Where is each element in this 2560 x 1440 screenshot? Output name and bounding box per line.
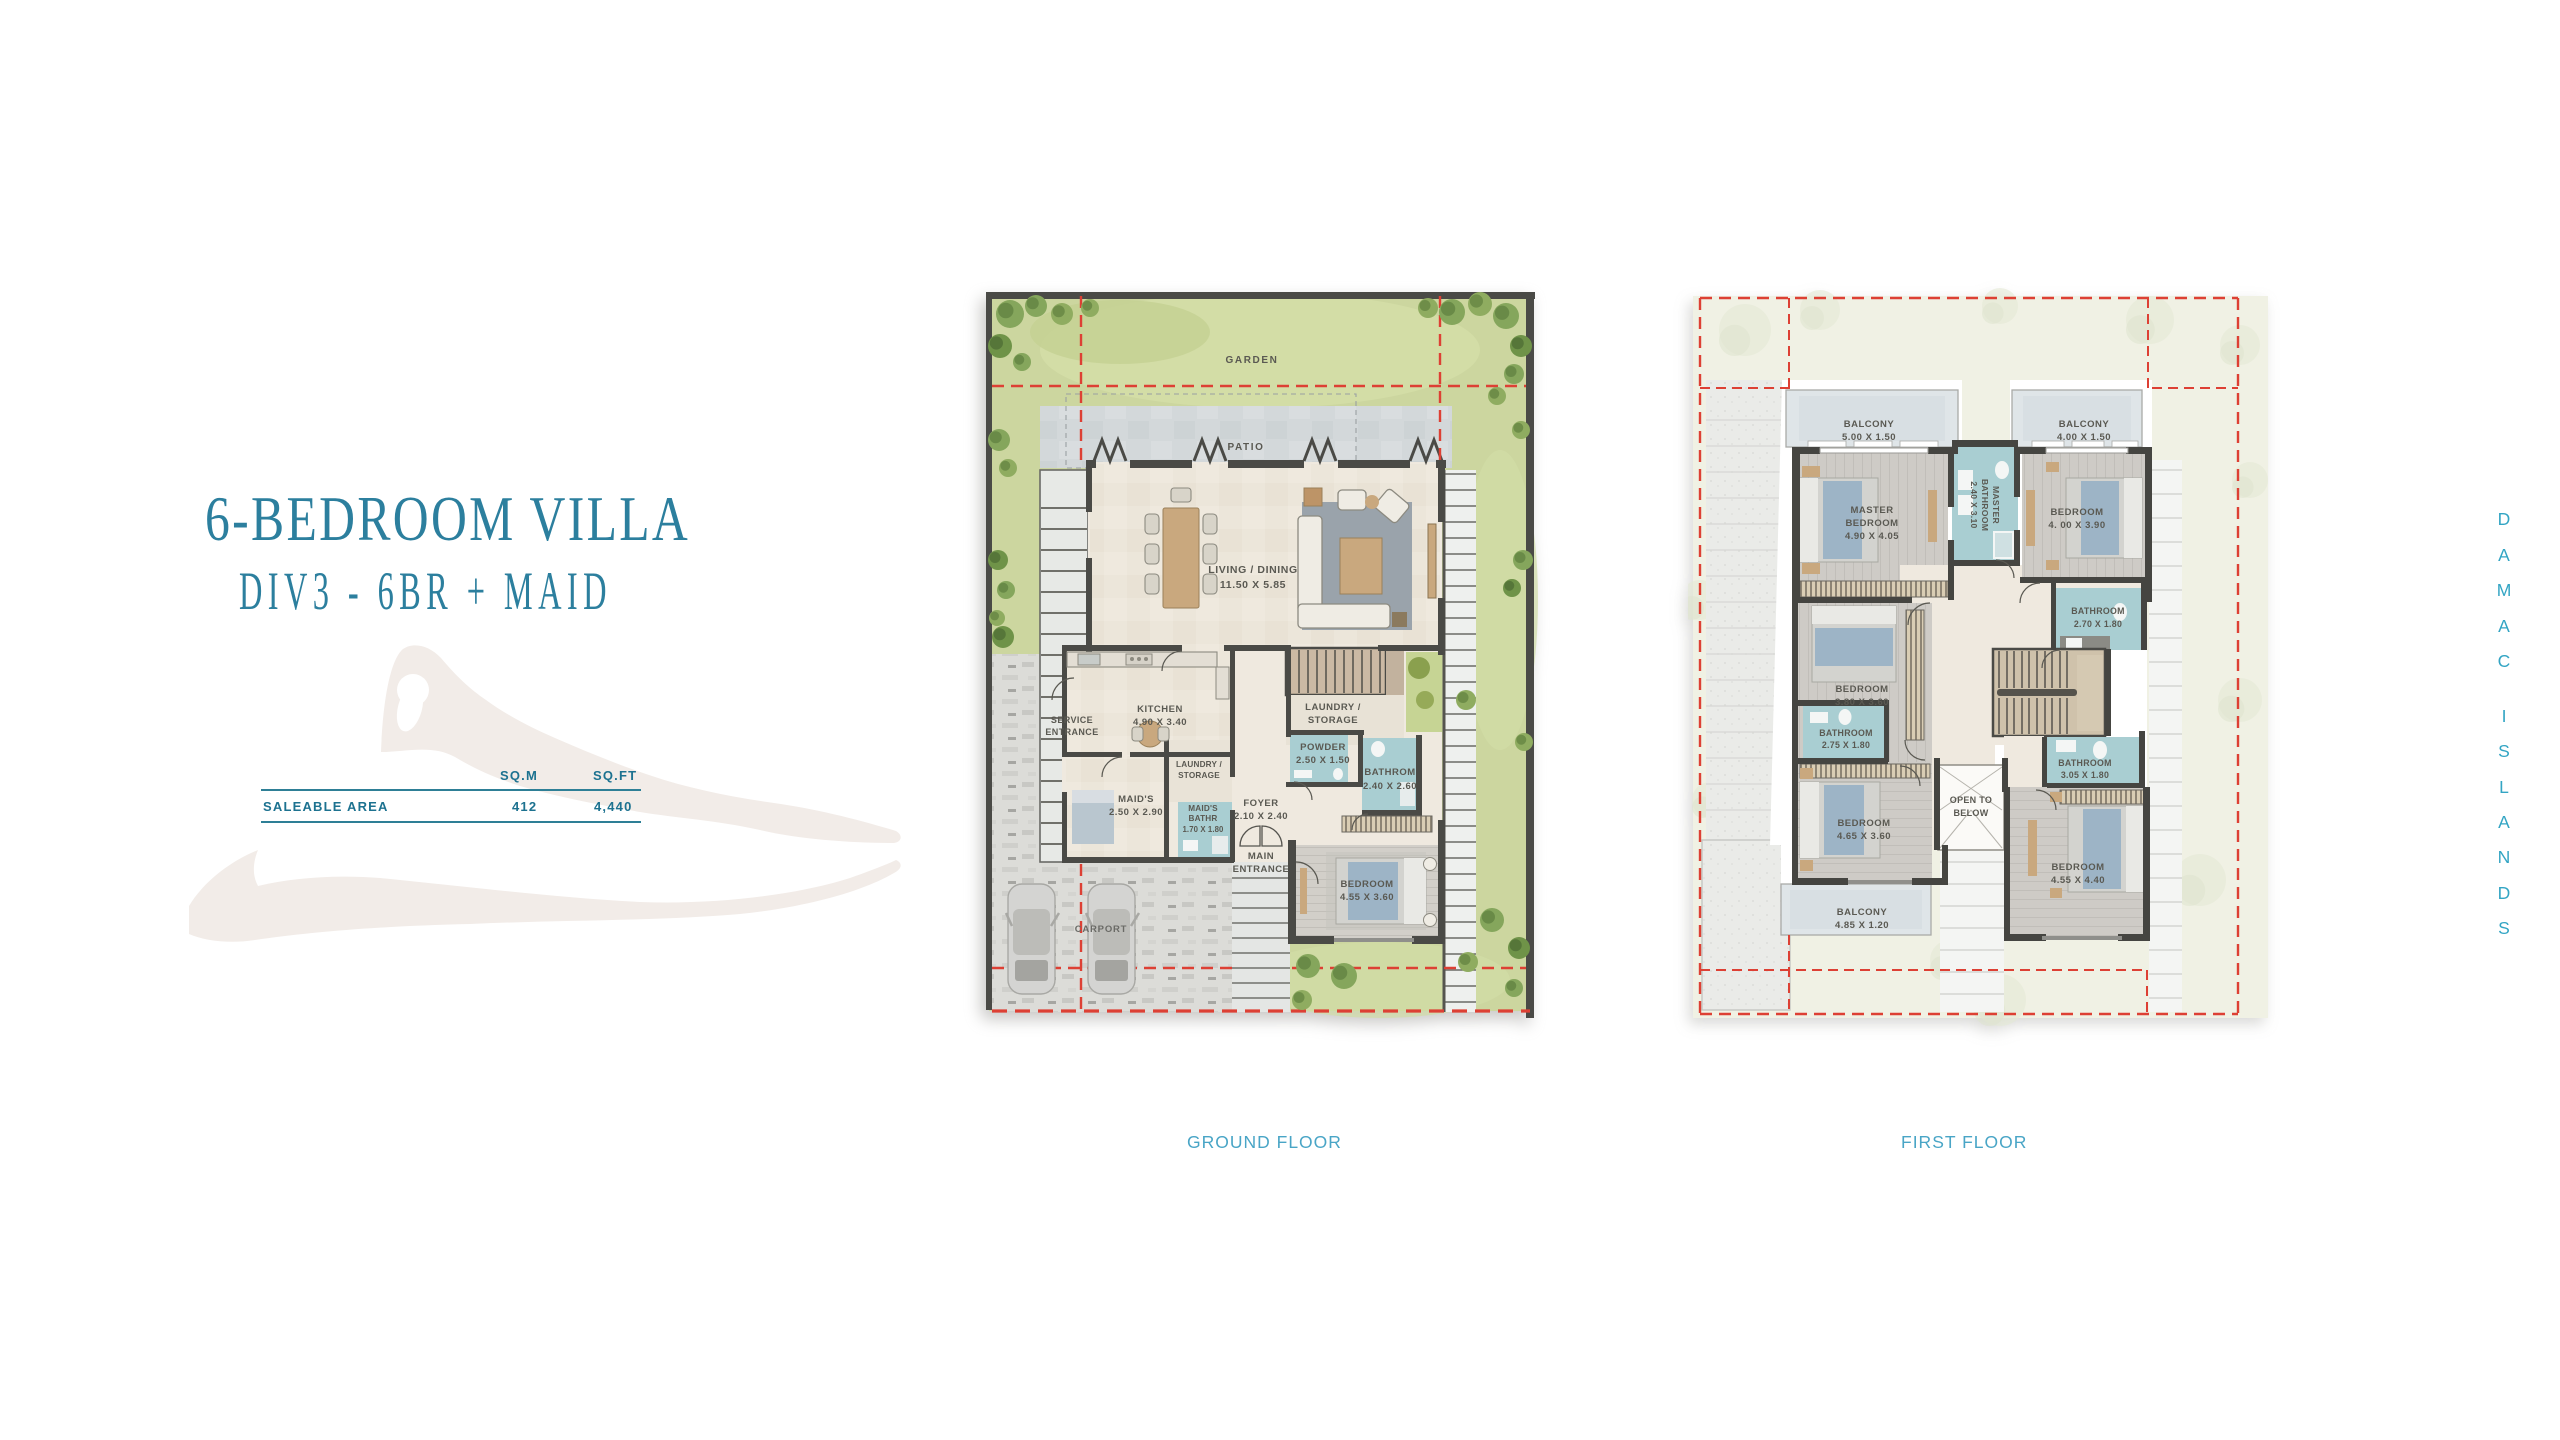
svg-text:BATHROOM: BATHROOM (2071, 606, 2125, 616)
svg-text:BALCONY: BALCONY (1837, 907, 1888, 918)
svg-text:MAID'S: MAID'S (1118, 794, 1154, 805)
svg-text:4.90 X 3.40: 4.90 X 3.40 (1133, 717, 1187, 728)
svg-text:ENTRANCE: ENTRANCE (1233, 864, 1290, 875)
svg-text:2.40 X 3.10: 2.40 X 3.10 (1969, 481, 1979, 528)
svg-text:4.55 X 3.60: 4.55 X 3.60 (1340, 892, 1394, 903)
svg-text:4. 00 X 3.90: 4. 00 X 3.90 (2048, 520, 2105, 531)
svg-text:POWDER: POWDER (1300, 742, 1346, 753)
svg-text:OPEN TO: OPEN TO (1950, 795, 1992, 805)
svg-text:GARDEN: GARDEN (1226, 355, 1279, 366)
svg-text:PATIO: PATIO (1227, 442, 1264, 453)
svg-text:ENTRANCE: ENTRANCE (1045, 727, 1098, 737)
svg-text:4.85 X 1.20: 4.85 X 1.20 (1835, 920, 1889, 931)
svg-text:KITCHEN: KITCHEN (1137, 704, 1183, 715)
svg-text:2.75 X 1.80: 2.75 X 1.80 (1822, 740, 1870, 750)
svg-text:2.50 X 2.90: 2.50 X 2.90 (1109, 807, 1163, 818)
svg-text:BEDROOM: BEDROOM (1845, 518, 1898, 529)
svg-text:2.50 X 1.50: 2.50 X 1.50 (1296, 755, 1350, 766)
svg-text:BEDROOM: BEDROOM (1837, 818, 1890, 829)
svg-text:BALCONY: BALCONY (1844, 419, 1895, 430)
svg-text:STORAGE: STORAGE (1178, 771, 1220, 780)
svg-text:3.80 X 3.60: 3.80 X 3.60 (1835, 697, 1889, 708)
svg-text:5.00 X 1.50: 5.00 X 1.50 (1842, 432, 1896, 443)
svg-text:BELOW: BELOW (1954, 808, 1989, 818)
svg-text:2.70 X 1.80: 2.70 X 1.80 (2074, 619, 2122, 629)
svg-text:BATHR: BATHR (1188, 814, 1217, 823)
svg-text:SERVICE: SERVICE (1051, 715, 1093, 725)
svg-text:BEDROOM: BEDROOM (1835, 684, 1888, 695)
svg-text:CARPORT: CARPORT (1075, 924, 1128, 935)
svg-text:LAUNDRY /: LAUNDRY / (1176, 760, 1222, 769)
svg-text:STORAGE: STORAGE (1308, 715, 1358, 726)
svg-text:BATHROM: BATHROM (1364, 767, 1415, 778)
svg-text:MASTER: MASTER (1850, 505, 1893, 516)
svg-text:2.40 X 2.60: 2.40 X 2.60 (1363, 781, 1417, 792)
svg-text:BEDROOM: BEDROOM (2051, 862, 2104, 873)
svg-text:LAUNDRY /: LAUNDRY / (1305, 702, 1361, 713)
svg-text:2.10 X 2.40: 2.10 X 2.40 (1234, 811, 1288, 822)
svg-text:MASTER: MASTER (1991, 486, 2001, 525)
svg-text:4.65 X 3.60: 4.65 X 3.60 (1837, 831, 1891, 842)
svg-text:4.55 X 4.40: 4.55 X 4.40 (2051, 875, 2105, 886)
svg-text:BATHROOM: BATHROOM (2058, 758, 2112, 768)
svg-text:FOYER: FOYER (1243, 798, 1278, 809)
svg-text:BEDROOM: BEDROOM (1340, 879, 1393, 890)
svg-text:3.05 X 1.80: 3.05 X 1.80 (2061, 770, 2109, 780)
svg-text:BALCONY: BALCONY (2059, 419, 2110, 430)
svg-text:4.90 X 4.05: 4.90 X 4.05 (1845, 531, 1899, 542)
svg-text:1.70 X 1.80: 1.70 X 1.80 (1183, 825, 1225, 834)
svg-text:BEDROOM: BEDROOM (2050, 507, 2103, 518)
svg-text:BATHROOM: BATHROOM (1980, 479, 1990, 531)
svg-text:BATHROOM: BATHROOM (1819, 728, 1873, 738)
svg-text:LIVING / DINING: LIVING / DINING (1208, 564, 1298, 576)
svg-text:MAIN: MAIN (1248, 851, 1274, 862)
svg-text:11.50 X 5.85: 11.50 X 5.85 (1220, 579, 1286, 591)
svg-text:MAID'S: MAID'S (1188, 804, 1218, 813)
svg-text:4.00 X 1.50: 4.00 X 1.50 (2057, 432, 2111, 443)
